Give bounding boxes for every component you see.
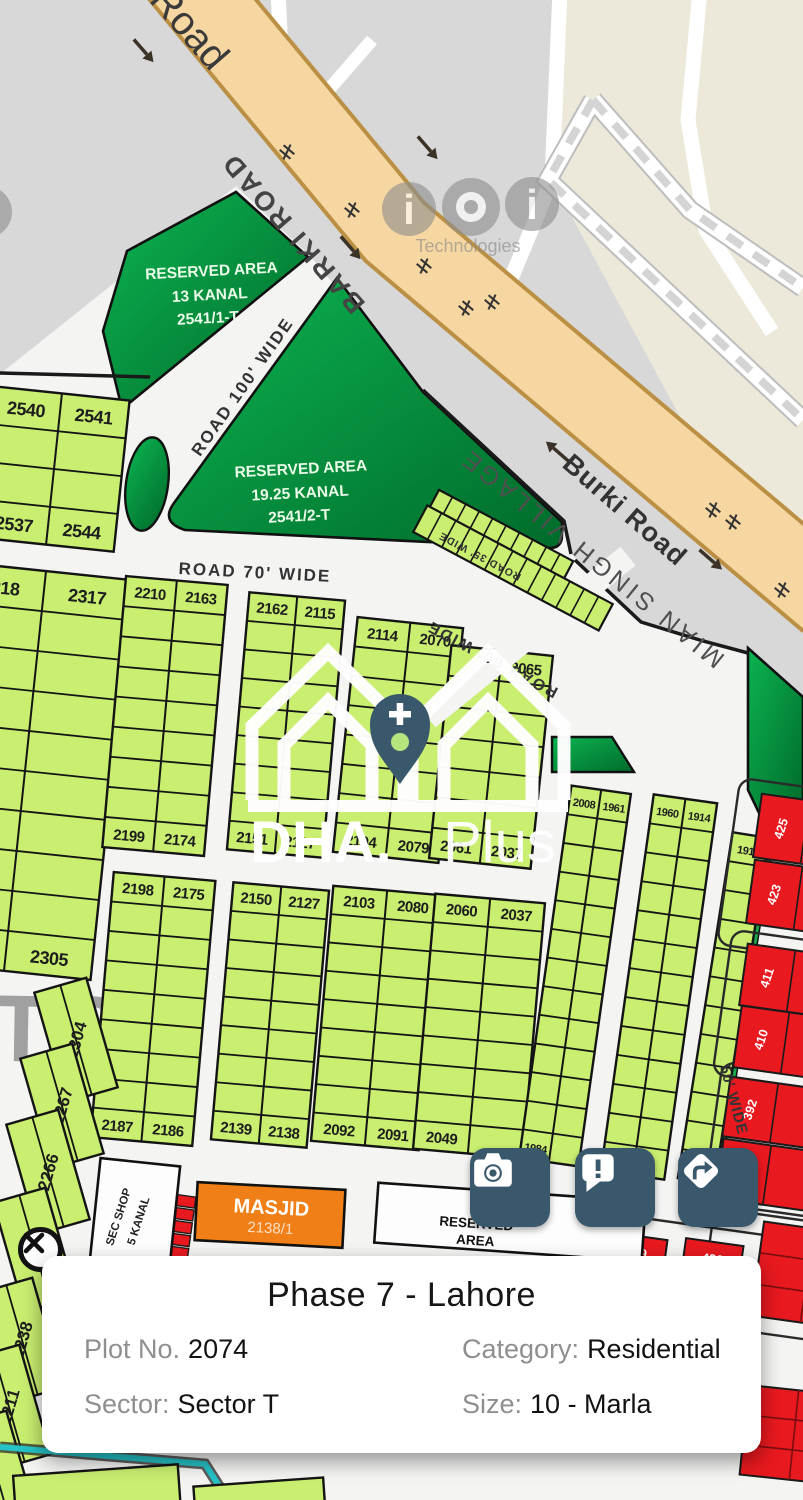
- svg-text:2138/1: 2138/1: [247, 1219, 294, 1238]
- directions-button[interactable]: [678, 1148, 758, 1227]
- plot-block[interactable]: 2540254125372544: [0, 386, 130, 551]
- svg-text:MASJID: MASJID: [233, 1195, 310, 1221]
- plot-number-field: Plot No.2074: [84, 1334, 248, 1365]
- plot-red[interactable]: 423: [746, 860, 803, 937]
- svg-text:i: i: [526, 181, 538, 228]
- plot-number: 2139: [220, 1119, 253, 1139]
- plot-number: 2199: [113, 827, 146, 847]
- plot-number: 2115: [304, 604, 336, 624]
- plot-number: 2210: [134, 584, 167, 604]
- card-title: Phase 7 - Lahore: [42, 1276, 761, 1315]
- plot-number: 2049: [425, 1129, 458, 1149]
- road-arrow-icon: [413, 132, 442, 163]
- plot-red[interactable]: 410: [733, 1006, 803, 1081]
- close-icon: [23, 1232, 45, 1254]
- plot-number: 2544: [62, 520, 102, 544]
- plot-number: 2541: [74, 405, 114, 429]
- plot-number: 2138: [267, 1123, 300, 1143]
- plot-number: 2305: [29, 946, 69, 970]
- plot-number: 2540: [6, 398, 46, 422]
- masjid-plot[interactable]: MASJID 2138/1: [195, 1182, 346, 1248]
- svg-text:i: i: [403, 186, 415, 233]
- plot-number: 2163: [184, 589, 217, 609]
- directions-icon: [678, 1148, 724, 1194]
- plot-block[interactable]: 2198217521872186: [91, 872, 216, 1146]
- plot-number: 2198: [121, 880, 154, 900]
- road-arrow-icon: [542, 437, 573, 466]
- plot-number: 2060: [445, 901, 478, 921]
- green-edge-polygon: [748, 648, 803, 815]
- brand-light: Plus: [443, 810, 556, 875]
- camera-icon: [470, 1148, 516, 1194]
- plot-red[interactable]: 425: [753, 794, 803, 871]
- plot-number: 2537: [0, 513, 34, 537]
- app-screen: TOR i i Technologies RESERVED AREA 13 KA…: [0, 0, 803, 1500]
- size-field: Size:10 - Marla: [462, 1389, 652, 1420]
- plot-number: 2186: [152, 1121, 185, 1141]
- report-button[interactable]: [575, 1148, 655, 1227]
- plot-number: 2174: [163, 831, 197, 851]
- plot-number: 2037: [500, 906, 533, 926]
- svg-text:2541/1-T: 2541/1-T: [177, 308, 240, 328]
- plot-number: 2162: [256, 600, 289, 620]
- plot-number: 2103: [343, 893, 376, 913]
- sector-field: Sector:Sector T: [84, 1389, 279, 1420]
- road-arrow-icon: [129, 35, 158, 66]
- plot-number: 2114: [366, 625, 399, 645]
- plot-number: 2091: [376, 1126, 409, 1146]
- svg-text:AREA: AREA: [456, 1232, 495, 1250]
- report-icon: [575, 1148, 621, 1194]
- plot-number: 2150: [240, 890, 273, 910]
- plot-number: 2317: [67, 585, 107, 609]
- camera-button[interactable]: [470, 1148, 550, 1227]
- plot-number: 2318: [0, 576, 21, 600]
- plot-info-card: Phase 7 - Lahore Plot No.2074 Category:R…: [42, 1256, 761, 1453]
- svg-text:2541/2-T: 2541/2-T: [268, 506, 331, 526]
- brand-bold: DHA.: [250, 810, 392, 875]
- plot-number: 2127: [287, 894, 320, 914]
- plot-number: 2187: [101, 1117, 134, 1137]
- technologies-label: Technologies: [415, 236, 520, 256]
- plot-number: 2080: [396, 898, 429, 918]
- plot-number: 2175: [172, 884, 205, 904]
- plot-number: 2079: [397, 837, 430, 857]
- plot-number: 2092: [323, 1121, 356, 1141]
- sec-shop-plot[interactable]: SEC SHOP 5 KANAL: [90, 1158, 180, 1268]
- category-field: Category:Residential: [462, 1334, 721, 1365]
